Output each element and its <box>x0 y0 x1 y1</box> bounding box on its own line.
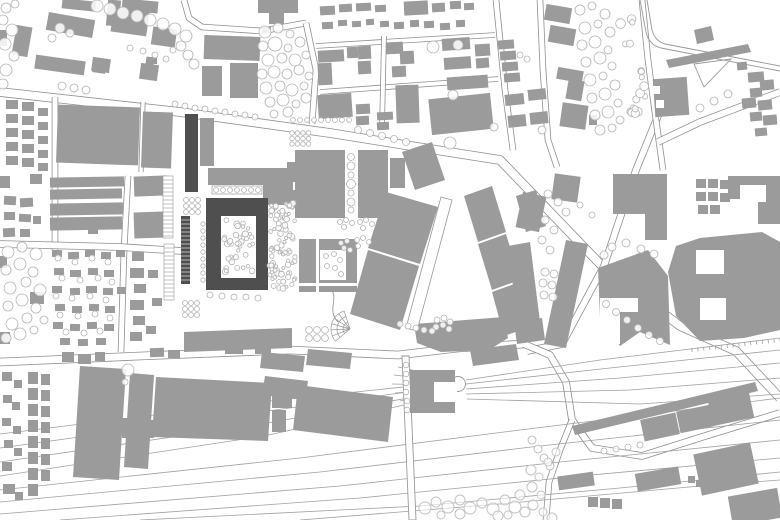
tree <box>252 114 258 120</box>
building <box>20 198 33 208</box>
building <box>527 88 546 101</box>
building <box>410 20 419 27</box>
building <box>548 25 577 46</box>
building <box>742 97 757 108</box>
courtyard <box>652 86 660 94</box>
tree <box>89 255 95 261</box>
building <box>55 304 65 311</box>
tree <box>275 81 285 91</box>
building <box>73 366 126 480</box>
tree <box>189 313 194 318</box>
fluffy-tree <box>419 502 431 514</box>
tree <box>190 210 195 215</box>
tree <box>269 263 274 268</box>
tree <box>295 142 300 147</box>
fluffy-tree <box>477 498 487 508</box>
building <box>19 214 31 223</box>
fluffy-tree <box>526 465 536 475</box>
tree <box>367 240 372 245</box>
building <box>498 39 515 49</box>
building <box>104 270 114 277</box>
tree <box>66 29 74 37</box>
tree <box>403 371 409 377</box>
building <box>3 395 12 403</box>
building <box>2 418 11 426</box>
tree <box>379 133 386 140</box>
tree <box>287 233 291 237</box>
tree <box>588 2 596 10</box>
building <box>28 452 38 464</box>
tree <box>305 72 313 80</box>
tree <box>579 22 591 34</box>
tree <box>344 218 349 223</box>
tree <box>55 255 61 261</box>
tree <box>290 142 295 147</box>
tree <box>528 436 536 444</box>
fluffy-tree <box>539 508 547 516</box>
building <box>130 268 144 278</box>
building <box>708 192 718 201</box>
tree <box>249 188 254 193</box>
building <box>22 102 34 111</box>
courtyard <box>656 100 664 108</box>
tree <box>348 248 353 253</box>
site-plan <box>0 0 780 520</box>
tree <box>190 204 195 209</box>
building <box>428 93 493 135</box>
building <box>204 35 261 61</box>
tree <box>444 137 456 149</box>
building <box>6 128 18 137</box>
tree <box>339 241 344 246</box>
tree <box>117 7 129 19</box>
tree <box>589 36 601 48</box>
tree <box>300 82 308 90</box>
tree <box>355 127 362 134</box>
building <box>356 3 371 12</box>
courtyard <box>434 382 457 402</box>
tree <box>0 15 8 25</box>
building <box>464 186 506 242</box>
building <box>0 176 10 188</box>
site-plan-map <box>0 0 780 520</box>
tree <box>605 27 615 37</box>
building <box>70 288 80 295</box>
tree <box>293 255 297 259</box>
tree <box>55 23 65 33</box>
fluffy-tree <box>455 509 465 519</box>
tree <box>222 109 228 115</box>
building <box>33 216 41 224</box>
tree <box>301 142 306 147</box>
tree <box>40 316 48 324</box>
tree <box>292 278 295 281</box>
tree <box>599 72 607 80</box>
building <box>70 270 81 277</box>
building <box>500 50 517 60</box>
tree <box>95 275 101 281</box>
building <box>272 410 286 432</box>
building <box>760 79 775 90</box>
building <box>456 20 465 27</box>
building <box>6 142 18 151</box>
building <box>13 426 21 434</box>
tree <box>163 56 169 62</box>
tree <box>0 79 8 89</box>
building <box>358 46 372 60</box>
tree <box>243 252 248 257</box>
tree <box>347 162 355 170</box>
tree <box>540 291 548 299</box>
tree <box>314 327 321 334</box>
tree <box>2 246 14 258</box>
tree <box>594 20 602 28</box>
building <box>133 316 145 325</box>
tree <box>278 251 281 254</box>
tree <box>534 445 542 453</box>
tree <box>364 218 369 223</box>
tree <box>638 69 644 75</box>
tree <box>279 243 284 248</box>
tree <box>348 172 354 178</box>
tree <box>281 279 286 284</box>
building <box>86 286 97 293</box>
tree <box>312 118 317 123</box>
tree <box>584 74 596 86</box>
building <box>20 229 30 237</box>
building <box>30 174 42 184</box>
stair-arc <box>337 317 346 338</box>
building <box>6 114 18 123</box>
tree <box>189 307 194 312</box>
tree <box>282 69 292 79</box>
tree <box>427 41 439 53</box>
tree <box>48 34 56 42</box>
tree <box>269 230 273 234</box>
tree <box>258 41 268 51</box>
tree <box>157 18 169 30</box>
tree <box>604 46 612 54</box>
tree <box>122 379 128 385</box>
building <box>375 5 386 13</box>
fluffy-tree <box>552 448 560 456</box>
building <box>688 476 695 483</box>
tree <box>242 231 248 237</box>
building <box>14 380 22 388</box>
courtyard <box>299 283 357 286</box>
tree <box>289 54 301 66</box>
tree <box>280 208 285 213</box>
tree <box>440 322 446 328</box>
building <box>4 212 15 220</box>
tree <box>9 51 19 61</box>
tree <box>70 84 78 92</box>
tree <box>524 56 530 62</box>
building <box>134 284 146 293</box>
tree <box>284 44 292 52</box>
tree <box>81 330 87 336</box>
building <box>432 3 445 13</box>
building <box>559 102 588 129</box>
building <box>52 286 62 293</box>
tree <box>595 125 605 135</box>
tree <box>602 106 614 118</box>
building <box>134 175 168 196</box>
tree <box>429 328 435 334</box>
building <box>2 462 12 471</box>
tree <box>544 190 552 198</box>
tree <box>404 398 410 404</box>
tree <box>301 131 306 136</box>
tree <box>202 106 208 112</box>
tree <box>356 244 361 249</box>
building <box>38 108 48 116</box>
tree <box>256 188 261 193</box>
tree <box>255 295 261 301</box>
building <box>105 306 115 313</box>
tree <box>248 243 252 247</box>
building <box>28 372 38 384</box>
tree <box>122 364 134 376</box>
tree <box>391 136 398 143</box>
tree <box>404 407 410 413</box>
tree <box>587 93 597 103</box>
building <box>152 377 272 441</box>
tree <box>324 254 329 259</box>
building <box>34 55 85 76</box>
tree <box>608 243 616 251</box>
tree <box>601 448 607 454</box>
building <box>400 51 415 65</box>
building <box>50 176 124 187</box>
tree <box>75 313 81 319</box>
tree <box>270 254 275 259</box>
tree <box>278 231 284 237</box>
tree <box>548 281 556 289</box>
hatched-strip <box>163 176 173 238</box>
tree <box>184 210 189 215</box>
building <box>22 130 34 139</box>
tree <box>625 444 631 450</box>
building <box>260 352 305 372</box>
fluffy-tree <box>515 490 525 500</box>
tree <box>646 332 653 339</box>
building <box>28 404 38 416</box>
tree <box>265 97 275 107</box>
building <box>653 77 690 117</box>
building <box>54 268 64 275</box>
tree <box>97 328 103 334</box>
building <box>14 448 22 456</box>
fluffy-tree <box>528 500 538 510</box>
tree <box>421 327 427 333</box>
tree <box>180 30 192 42</box>
tree <box>280 286 286 292</box>
tree <box>322 327 329 334</box>
tree <box>170 47 176 53</box>
tree <box>248 232 251 235</box>
tree <box>613 446 619 452</box>
building <box>613 174 667 240</box>
tree <box>242 112 248 118</box>
building <box>116 250 125 257</box>
tree <box>358 220 363 225</box>
building <box>696 480 703 487</box>
tree <box>290 136 295 141</box>
building <box>152 298 162 306</box>
tree <box>207 292 213 298</box>
building <box>60 338 70 345</box>
tree <box>562 208 570 216</box>
fluffy-tree <box>520 507 530 517</box>
tree <box>107 315 113 321</box>
tree <box>235 242 239 246</box>
building <box>3 484 15 494</box>
building <box>588 497 598 507</box>
building <box>50 188 122 199</box>
tree <box>201 257 205 261</box>
tree <box>270 110 278 118</box>
tree <box>221 188 226 193</box>
building <box>504 93 524 106</box>
tree <box>1 333 11 343</box>
tree <box>201 229 205 233</box>
building <box>322 22 333 30</box>
tree <box>192 105 198 111</box>
building <box>28 468 38 480</box>
tree <box>577 40 587 50</box>
tree <box>447 319 453 325</box>
tree <box>554 198 562 206</box>
tree <box>301 93 311 103</box>
tree <box>189 301 194 306</box>
tree <box>140 48 146 54</box>
tree <box>183 307 188 312</box>
tree <box>219 293 225 299</box>
tree <box>246 227 249 230</box>
building <box>392 66 407 78</box>
tree <box>281 253 284 256</box>
tree <box>257 69 267 79</box>
tree <box>237 249 240 252</box>
hatched-strip <box>181 216 190 284</box>
building <box>464 3 474 11</box>
tree <box>268 66 280 78</box>
building <box>507 114 526 128</box>
tree <box>290 131 295 136</box>
building <box>103 288 113 295</box>
tree <box>347 198 355 206</box>
tree <box>196 198 201 203</box>
tree <box>306 327 313 334</box>
tree <box>616 19 626 29</box>
tree <box>109 279 115 285</box>
tree <box>14 258 26 270</box>
tree <box>176 41 186 51</box>
tree <box>214 188 219 193</box>
building <box>698 205 708 214</box>
building <box>41 374 50 385</box>
tree <box>201 236 205 240</box>
tree <box>190 198 195 203</box>
tree <box>453 40 463 50</box>
tree <box>201 222 205 226</box>
tree <box>594 52 606 64</box>
tree <box>243 294 249 300</box>
tree <box>269 208 275 214</box>
building <box>320 6 335 16</box>
tree <box>103 297 109 303</box>
building <box>557 472 595 491</box>
tree <box>355 238 360 243</box>
tree <box>403 389 409 395</box>
tree <box>278 238 281 241</box>
tree <box>284 216 290 222</box>
building <box>50 216 122 230</box>
tree <box>347 118 352 123</box>
tree <box>616 116 624 124</box>
fluffy-tree <box>537 491 545 499</box>
tree <box>273 276 277 280</box>
tree <box>22 313 32 323</box>
tree <box>361 226 366 231</box>
tree <box>288 250 292 254</box>
building <box>28 436 38 448</box>
building <box>89 304 99 311</box>
building <box>450 1 461 10</box>
tree <box>603 301 610 308</box>
building <box>318 49 345 62</box>
tree <box>370 222 375 227</box>
tree <box>30 248 42 260</box>
tree <box>195 313 200 318</box>
tree <box>104 3 116 15</box>
building <box>130 300 144 310</box>
tree <box>275 213 280 218</box>
building <box>529 111 548 125</box>
building <box>41 406 50 417</box>
tree <box>4 282 16 294</box>
stair-radial <box>334 318 350 329</box>
building <box>62 352 74 362</box>
building <box>696 192 706 201</box>
tree <box>69 295 75 301</box>
tree <box>546 246 554 254</box>
tree <box>260 82 272 94</box>
tree <box>348 154 355 161</box>
tree <box>282 222 288 228</box>
building <box>502 61 519 71</box>
fluffy-tree <box>504 511 512 519</box>
building <box>56 105 140 166</box>
tree <box>403 362 409 368</box>
building <box>148 270 158 278</box>
tree <box>196 204 201 209</box>
tree <box>614 99 622 107</box>
tree <box>338 220 343 225</box>
stair-radial <box>335 329 350 341</box>
building <box>475 43 491 56</box>
tree <box>589 212 595 218</box>
tree <box>196 210 201 215</box>
tree <box>282 266 285 269</box>
fluffy-tree <box>431 497 441 507</box>
building <box>612 499 622 509</box>
tree <box>710 97 718 105</box>
tree <box>413 325 419 331</box>
tree <box>77 277 83 283</box>
building <box>293 385 393 442</box>
